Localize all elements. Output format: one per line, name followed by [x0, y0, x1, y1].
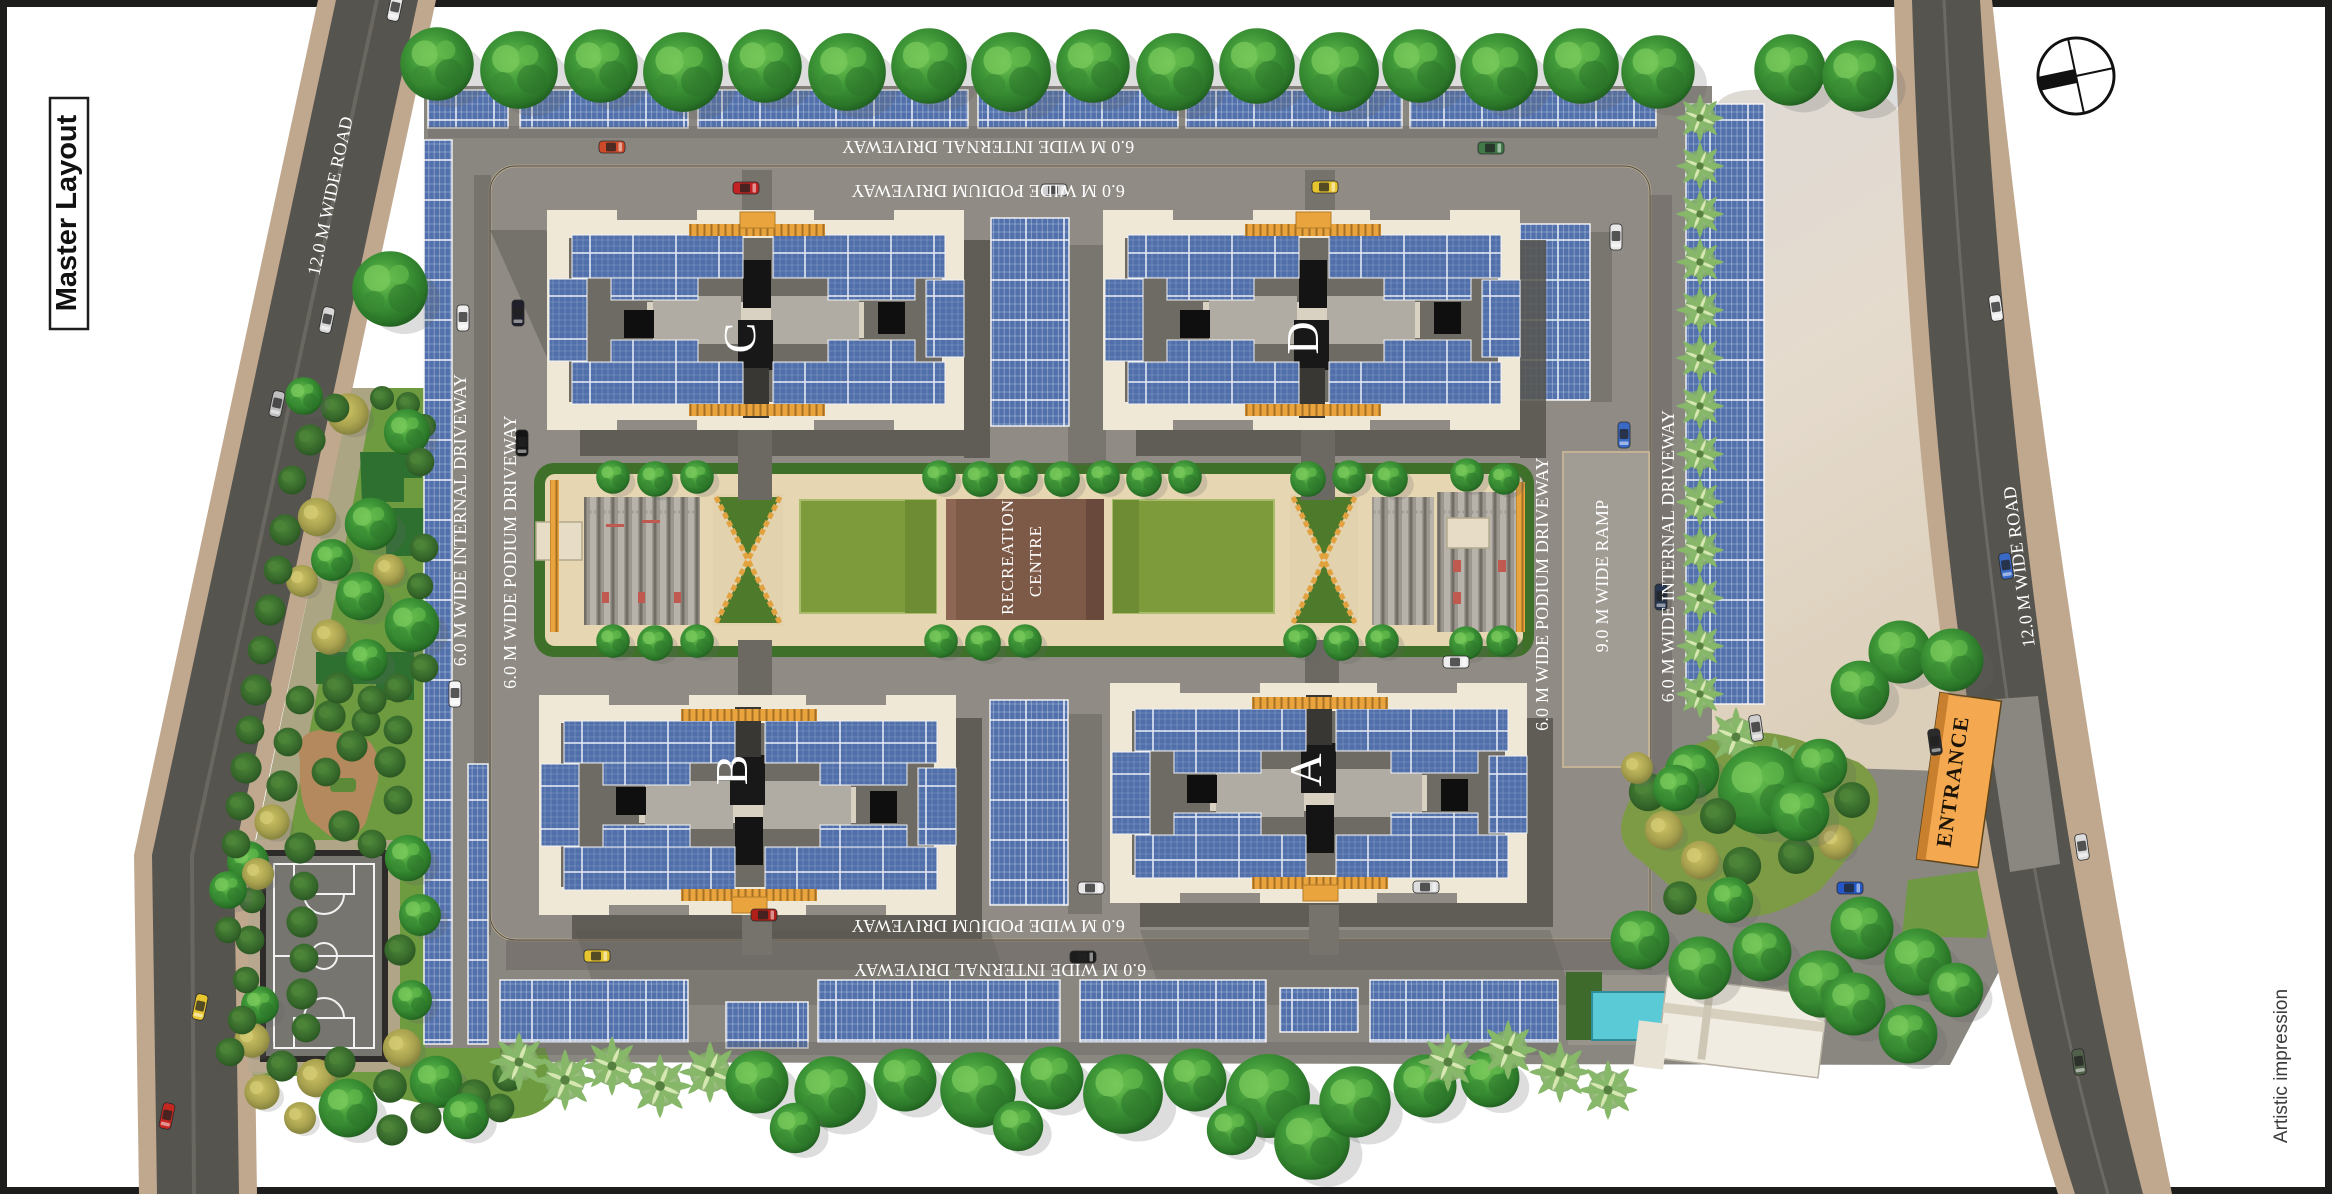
svg-text:6.0 M WIDE INTERNAL DRIVEWAY: 6.0 M WIDE INTERNAL DRIVEWAY	[854, 960, 1146, 980]
svg-text:Master Layout: Master Layout	[51, 114, 83, 311]
svg-text:B: B	[706, 755, 757, 786]
svg-text:RECREATION: RECREATION	[998, 499, 1017, 615]
svg-text:6.0 M WIDE PODIUM DRIVEWAY: 6.0 M WIDE PODIUM DRIVEWAY	[851, 181, 1125, 201]
svg-text:6.0 M WIDE INTERNAL DRIVEWAY: 6.0 M WIDE INTERNAL DRIVEWAY	[450, 374, 470, 666]
svg-text:6.0 M WIDE INTERNAL DRIVEWAY: 6.0 M WIDE INTERNAL DRIVEWAY	[842, 137, 1134, 157]
svg-text:Artistic impression: Artistic impression	[2271, 989, 2292, 1143]
svg-text:6.0 M WIDE PODIUM DRIVEWAY: 6.0 M WIDE PODIUM DRIVEWAY	[851, 916, 1125, 936]
svg-text:6.0 M WIDE INTERNAL DRIVEWAY: 6.0 M WIDE INTERNAL DRIVEWAY	[1658, 410, 1678, 702]
svg-text:A: A	[1280, 753, 1331, 786]
svg-text:C: C	[714, 323, 765, 354]
svg-text:CENTRE: CENTRE	[1026, 525, 1045, 597]
svg-text:9.0 M WIDE RAMP: 9.0 M WIDE RAMP	[1592, 500, 1612, 653]
svg-text:D: D	[1277, 321, 1328, 354]
svg-text:6.0 M WIDE PODIUM DRIVEWAY: 6.0 M WIDE PODIUM DRIVEWAY	[1532, 457, 1552, 731]
svg-text:6.0 M WIDE PODIUM DRIVEWAY: 6.0 M WIDE PODIUM DRIVEWAY	[500, 415, 520, 689]
